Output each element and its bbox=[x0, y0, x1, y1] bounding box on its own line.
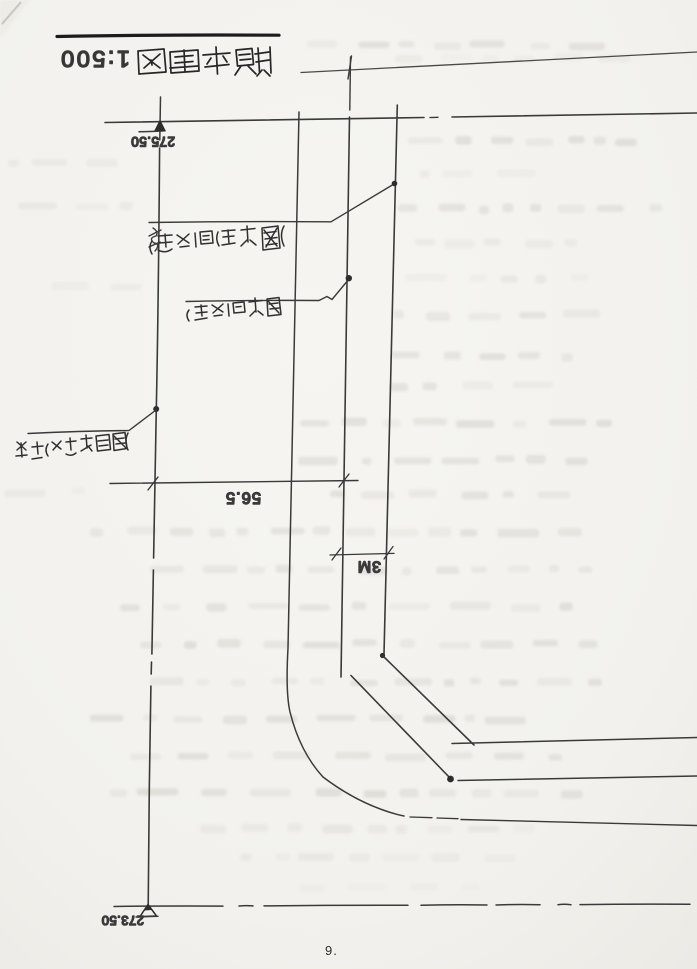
svg-text:3M: 3M bbox=[357, 558, 381, 575]
svg-text:9.: 9. bbox=[325, 943, 338, 958]
svg-text:1:500: 1:500 bbox=[59, 46, 130, 72]
svg-text:56.5: 56.5 bbox=[225, 489, 261, 507]
svg-text:273.50: 273.50 bbox=[101, 913, 144, 928]
svg-text:275.50: 275.50 bbox=[131, 134, 175, 149]
